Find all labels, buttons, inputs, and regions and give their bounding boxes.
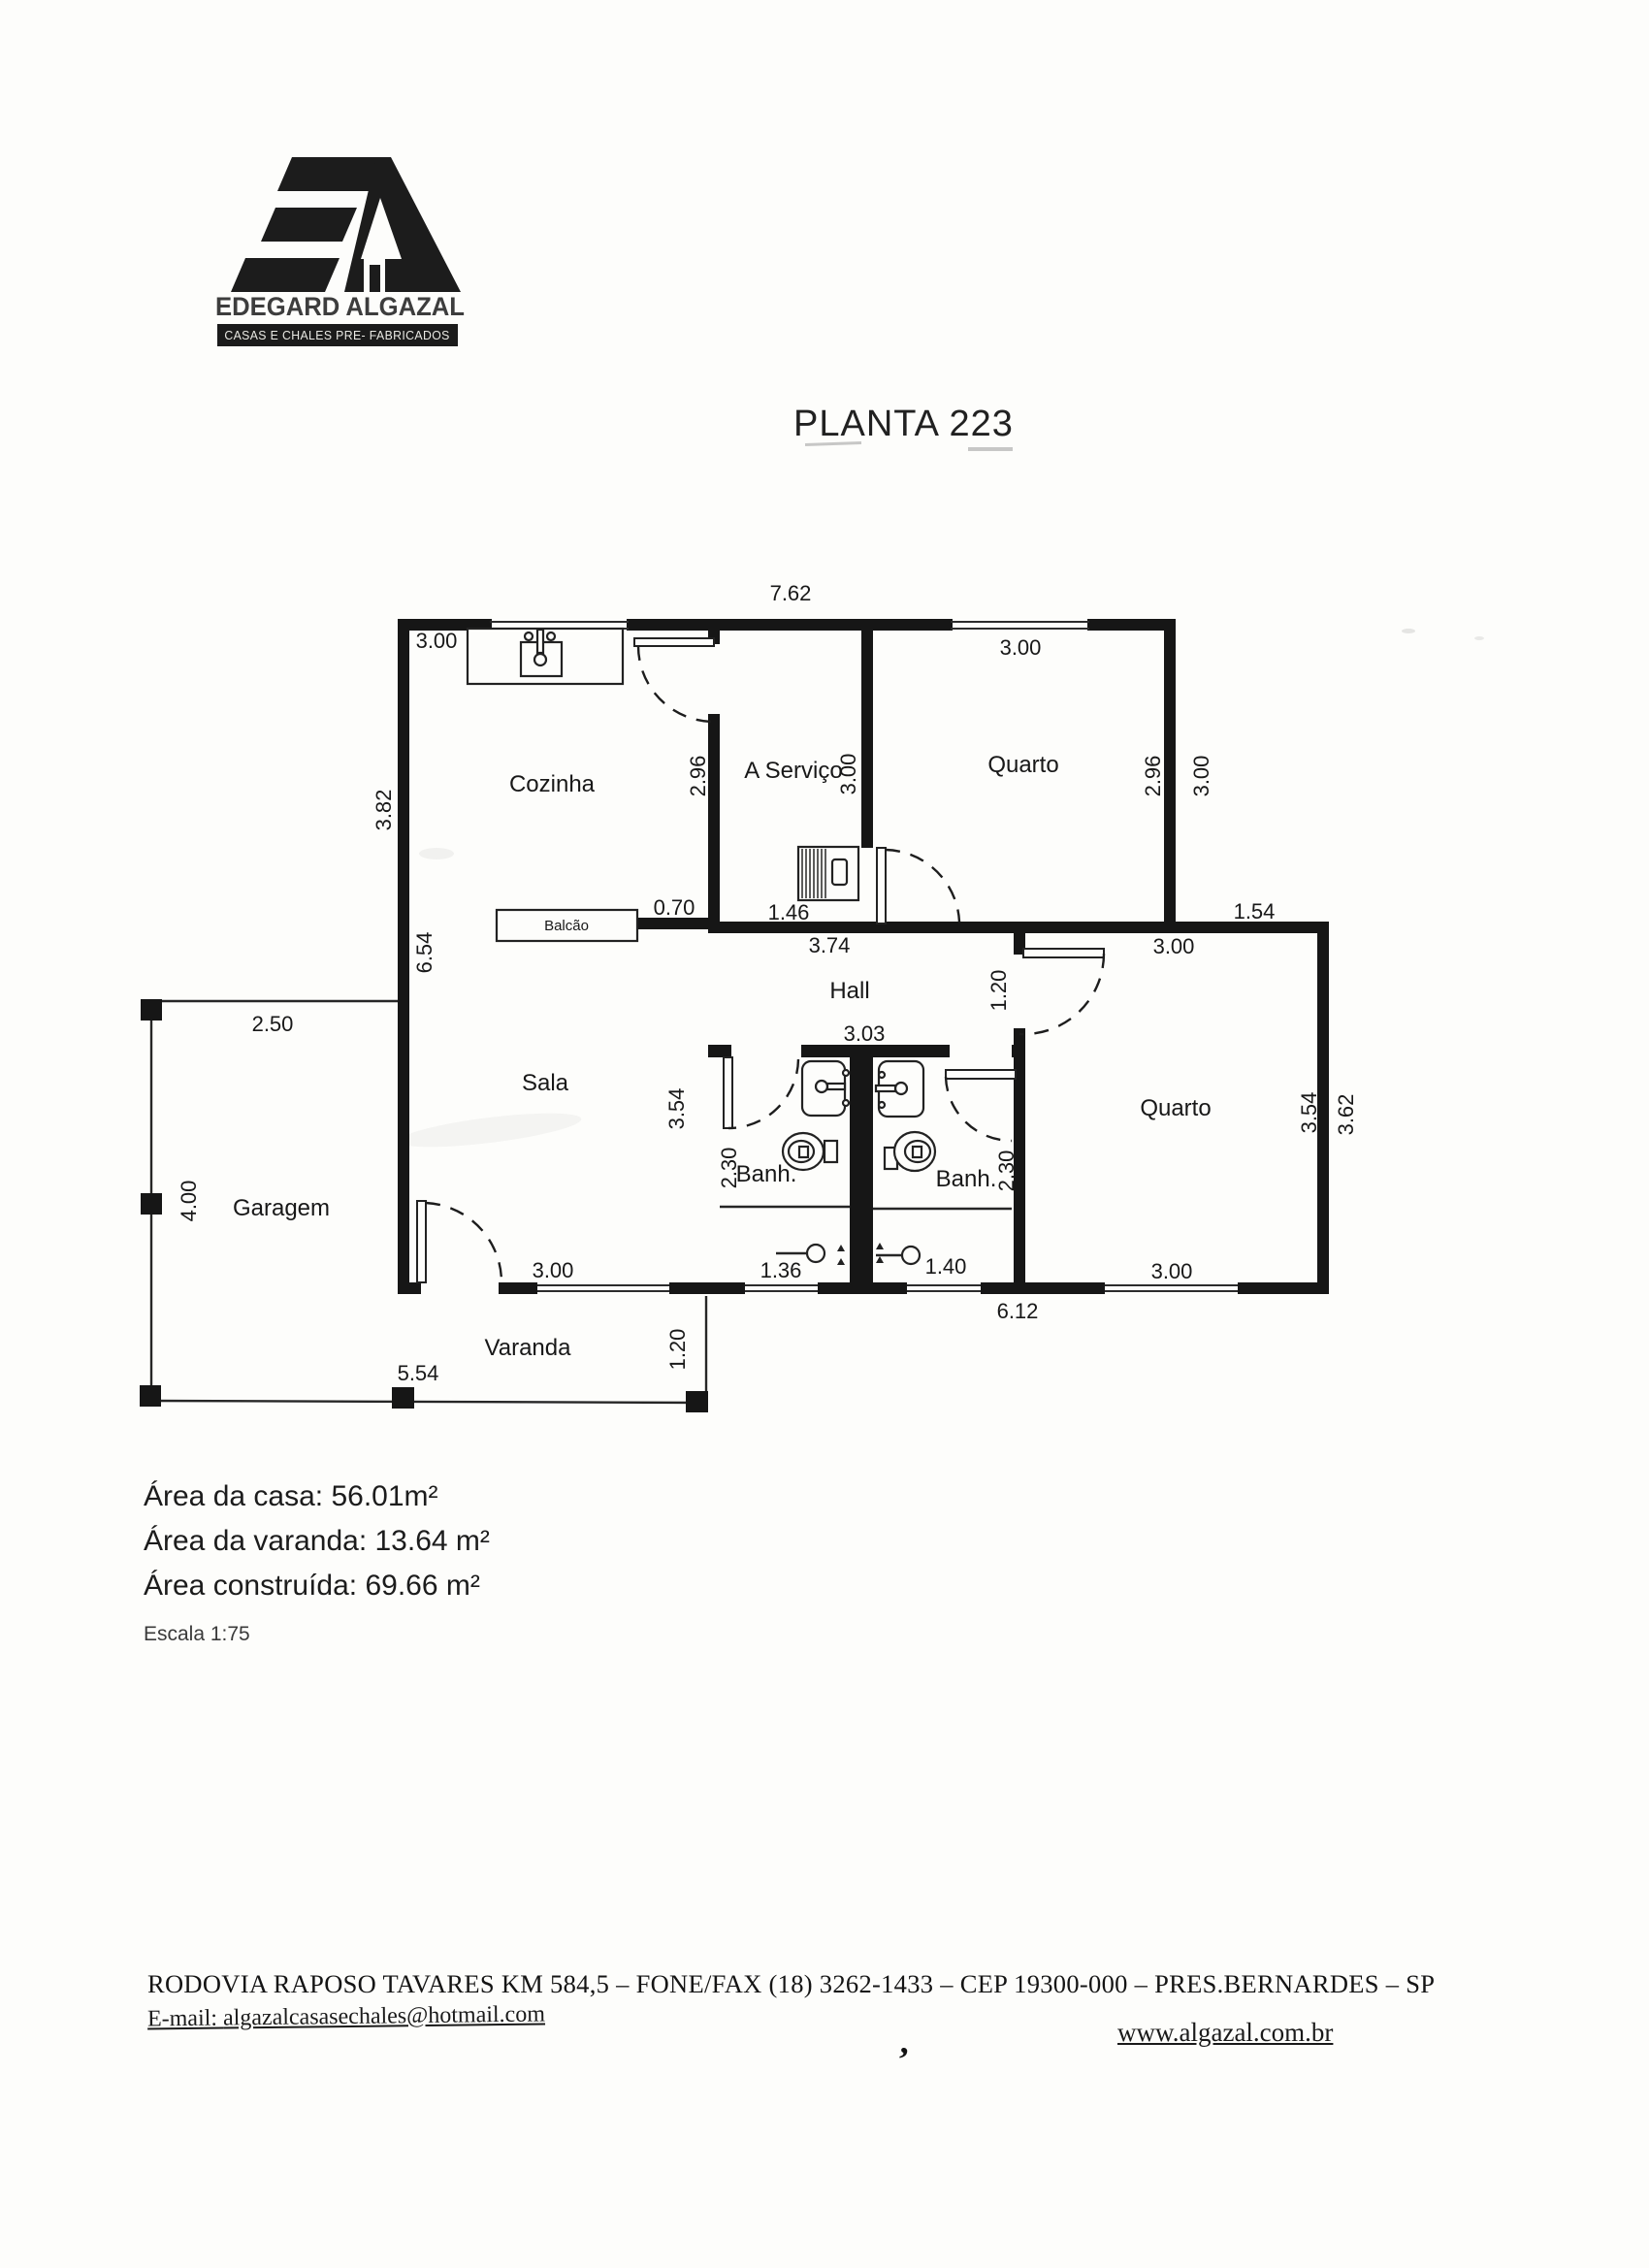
room-label-servico: A Serviço [744,758,842,784]
dim-banh-right-height: 2.30 [994,1150,1018,1192]
room-label-banh-left: Banh. [736,1161,797,1187]
dim-banh-left-height: 2.30 [717,1148,741,1189]
room-label-hall: Hall [829,978,869,1004]
scan-blot [419,848,454,859]
house-area-value: 56.01m² [331,1480,437,1512]
dim-quarto-right-bottom: 3.00 [1151,1259,1193,1283]
footer-website: www.algazal.com.br [1117,2018,1333,2048]
footer-email: E-mail: algazalcasasechales@hotmail.com [147,2001,545,2032]
ink-mark: ’ [895,2038,911,2080]
dim-balcao-wall: 0.70 [654,895,695,920]
scan-speck [1474,636,1484,640]
built-area-label: Área construída: [144,1570,365,1602]
dim-left-top: 3.82 [372,790,396,831]
garage-post [141,999,162,1021]
dim-quarto-right-height-in: 3.54 [1297,1092,1321,1134]
house-area-label: Área da casa: [144,1480,323,1512]
dim-bottom-right: 6.12 [997,1299,1039,1323]
garage-post [140,1385,161,1407]
dim-shower-right: 1.40 [925,1254,967,1279]
room-label-cozinha: Cozinha [509,771,596,797]
dim-sala-height: 3.54 [664,1088,689,1130]
scan-blot [397,1107,583,1154]
dim-left-bottom: 6.54 [412,932,436,974]
washing-machine-icon [798,847,858,900]
dim-garage-width: 2.50 [252,1012,294,1036]
scale-note: Escala 1:75 [144,1612,490,1657]
dim-quarto-top-width: 3.00 [1000,635,1042,660]
dim-servico-width: 1.46 [768,900,810,924]
house-area-line: Área da casa: 56.01m² [144,1474,490,1519]
area-summary: Área da casa: 56.01m² Área da varanda: 1… [144,1474,490,1657]
room-label-quarto-top: Quarto [987,752,1058,778]
built-area-value: 69.66 m² [365,1570,479,1602]
varanda-area-label: Área da varanda: [144,1525,367,1557]
dim-hall-width: 3.74 [809,933,851,957]
varanda-area-line: Área da varanda: 13.64 m² [144,1519,490,1564]
room-label-banh-right: Banh. [936,1166,997,1192]
dim-servico-height: 3.00 [836,754,860,795]
dim-varanda-width: 5.54 [398,1361,439,1385]
dim-sala-bottom: 3.00 [533,1258,574,1282]
dim-quarto-right-height-out: 3.62 [1334,1094,1358,1136]
footer-email-value: algazalcasasechales@hotmail.com [223,2001,545,2030]
room-label-sala: Sala [522,1070,569,1096]
varanda-area-value: 13.64 m² [375,1525,490,1557]
floor-plan-drawing: Balcão Cozinha A Serviço Quarto Hall Sal… [0,0,1649,1455]
varanda-post [392,1387,414,1409]
scanned-floorplan-page: EDEGARD ALGAZAL CASAS E CHALES PRE- FABR… [0,0,1649,2268]
dim-top-width: 7.62 [770,581,812,605]
balcao-label: Balcão [544,918,589,934]
garage-post [141,1193,162,1215]
kitchen-counter-sink-icon [468,629,623,684]
dim-varanda-height: 1.20 [665,1329,690,1371]
dim-quarto-top-height-out: 3.00 [1189,756,1213,797]
scan-speck [1402,629,1415,633]
varanda-post [686,1391,708,1412]
room-label-garagem: Garagem [233,1195,330,1221]
dim-quarto-top-height-in: 2.96 [1141,756,1165,797]
dim-door-recess: 1.20 [986,970,1011,1012]
dim-hall-lower: 3.03 [844,1021,886,1046]
footer-address: RODOVIA RAPOSO TAVARES KM 584,5 – FONE/F… [147,1969,1435,1999]
room-label-quarto-right: Quarto [1140,1095,1211,1121]
dim-shower-left: 1.36 [760,1258,802,1282]
dim-quarto-right-top: 3.00 [1153,934,1195,958]
footer-email-label: E-mail: [147,2006,223,2032]
dim-cozinha-height: 2.96 [686,756,710,797]
dim-garage-height: 4.00 [177,1181,201,1222]
dim-step-width: 1.54 [1234,899,1276,923]
dim-cozinha-width: 3.00 [416,629,458,653]
room-label-varanda: Varanda [485,1335,572,1361]
built-area-line: Área construída: 69.66 m² [144,1564,490,1608]
